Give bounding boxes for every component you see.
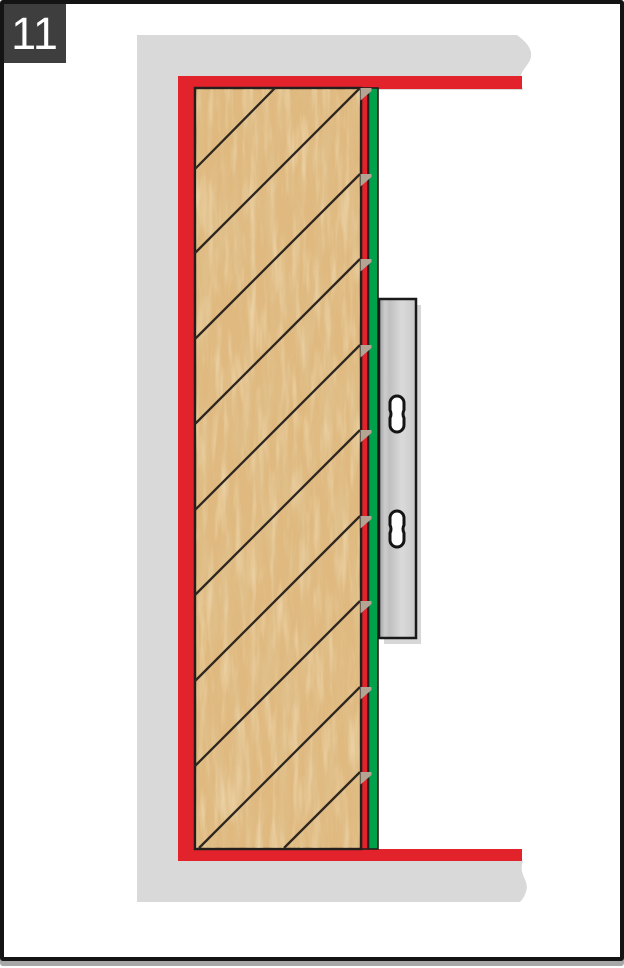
edge-red-strip	[362, 88, 369, 849]
wall-bottom-flange	[137, 861, 527, 902]
mounting-rail-group	[379, 299, 421, 644]
assembly-diagram: 11	[0, 0, 624, 961]
instruction-card: 11	[0, 0, 624, 961]
edge-strips	[361, 88, 379, 849]
green-sealant-strip	[369, 88, 379, 849]
wood-grain	[196, 89, 360, 848]
red-seal-left-strip	[178, 76, 196, 860]
step-badge: 11	[3, 3, 66, 63]
step-number: 11	[11, 8, 58, 59]
rail-keyhole-slot	[390, 396, 404, 432]
red-seal-bottom-strip	[178, 849, 522, 861]
instruction-page: 11	[0, 0, 624, 968]
rail-keyhole-slot	[390, 511, 404, 547]
wall-left-web	[137, 35, 178, 902]
wood-panel-group	[195, 88, 361, 849]
mounting-rail	[379, 299, 416, 638]
